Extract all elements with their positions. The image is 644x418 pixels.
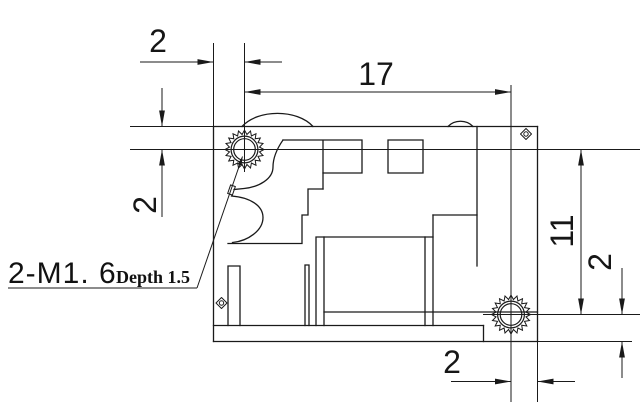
dim-label-left-2: 2 — [127, 196, 163, 214]
top-bump-arc-right — [448, 121, 473, 126]
diamond-outline — [216, 298, 227, 309]
threaded-holes-layer — [225, 130, 531, 334]
top-bump-arc-left — [242, 113, 313, 126]
diamond-marker-left — [216, 298, 227, 309]
drawing-canvas: 2 17 2 11 2 2 2-M1. 6 Depth 1.5 — [0, 0, 644, 418]
dim-label-11: 11 — [544, 214, 580, 247]
leader-reference-box — [228, 185, 236, 195]
dim-label-17: 17 — [358, 56, 394, 92]
dim-label-top-2: 2 — [149, 23, 167, 59]
internal-features — [228, 127, 538, 326]
left-cavity-wall — [228, 266, 240, 326]
upper-slot-left — [283, 140, 362, 173]
hole-center-dot — [510, 314, 512, 316]
diamond-inner-circle — [219, 301, 223, 305]
dim-label-right-2: 2 — [582, 253, 618, 271]
thread-callout: 2-M1. 6 Depth 1.5 — [8, 157, 243, 291]
callout-leader-line — [197, 157, 243, 289]
thread-size-label: 2-M1. 6 — [8, 257, 117, 290]
threaded-hole-top-left — [225, 130, 264, 169]
part-outline — [214, 113, 538, 341]
thread-depth-label: Depth 1.5 — [116, 267, 190, 287]
terminal-pin — [305, 265, 309, 326]
diamond-marker-top-right — [521, 129, 532, 140]
threaded-hole-bottom-right — [492, 295, 531, 334]
engineering-drawing: 2 17 2 11 2 2 2-M1. 6 Depth 1.5 — [0, 0, 644, 418]
cavity-bulge-curve — [232, 196, 264, 243]
upper-slot-right — [388, 140, 423, 173]
hole-center-dot — [244, 149, 246, 151]
diamond-inner-circle — [524, 132, 528, 136]
diamond-outline — [521, 129, 532, 140]
dim-label-bottom-2: 2 — [443, 344, 461, 380]
